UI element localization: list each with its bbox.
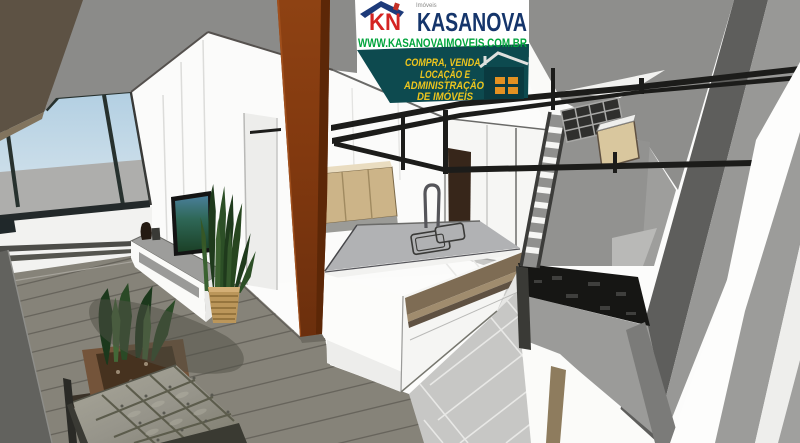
- svg-text:WWW.KASANOVAIMOVEIS.COM.BR: WWW.KASANOVAIMOVEIS.COM.BR: [358, 38, 528, 50]
- svg-text:DE IMÓVEIS: DE IMÓVEIS: [417, 90, 474, 103]
- svg-text:KASANOVA: KASANOVA: [417, 7, 527, 37]
- svg-text:COMPRA, VENDA,: COMPRA, VENDA,: [405, 57, 483, 69]
- svg-text:KN: KN: [369, 9, 401, 36]
